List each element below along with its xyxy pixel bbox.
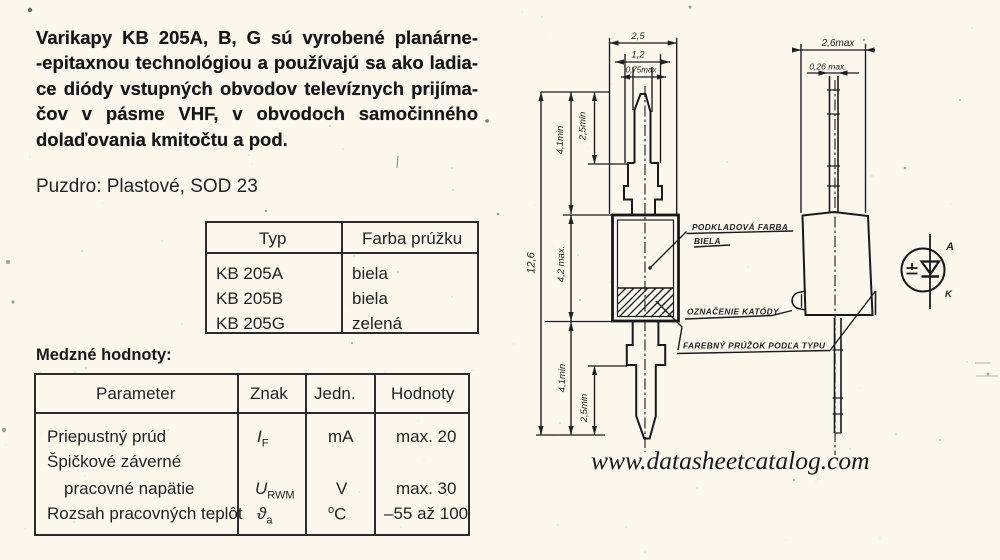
svg-text:2,5min: 2,5min	[579, 394, 590, 424]
svg-text:A: A	[945, 241, 954, 253]
svg-text:4,1min: 4,1min	[555, 126, 566, 155]
svg-text:12,6: 12,6	[526, 251, 538, 273]
svg-text:OZNAČENIE KATÓDY: OZNAČENIE KATÓDY	[687, 306, 780, 317]
svg-text:4,2 max.: 4,2 max.	[556, 246, 567, 282]
svg-text:K: K	[945, 289, 953, 300]
svg-text:1,2: 1,2	[631, 50, 645, 61]
svg-text:0,75max: 0,75max	[626, 66, 658, 75]
svg-text:BIELA: BIELA	[694, 236, 721, 246]
svg-text:2,6max: 2,6max	[821, 38, 856, 49]
svg-text:FAREBNÝ PRÚŽOK PODĽA TYPU: FAREBNÝ PRÚŽOK PODĽA TYPU	[683, 340, 826, 351]
svg-text:2,5: 2,5	[630, 31, 645, 42]
svg-text:PODKLADOVÁ FARBA: PODKLADOVÁ FARBA	[692, 222, 788, 232]
svg-text:0,26 max.: 0,26 max.	[809, 62, 846, 72]
svg-text:4,1min: 4,1min	[557, 364, 568, 393]
svg-text:2,5min: 2,5min	[578, 112, 589, 142]
